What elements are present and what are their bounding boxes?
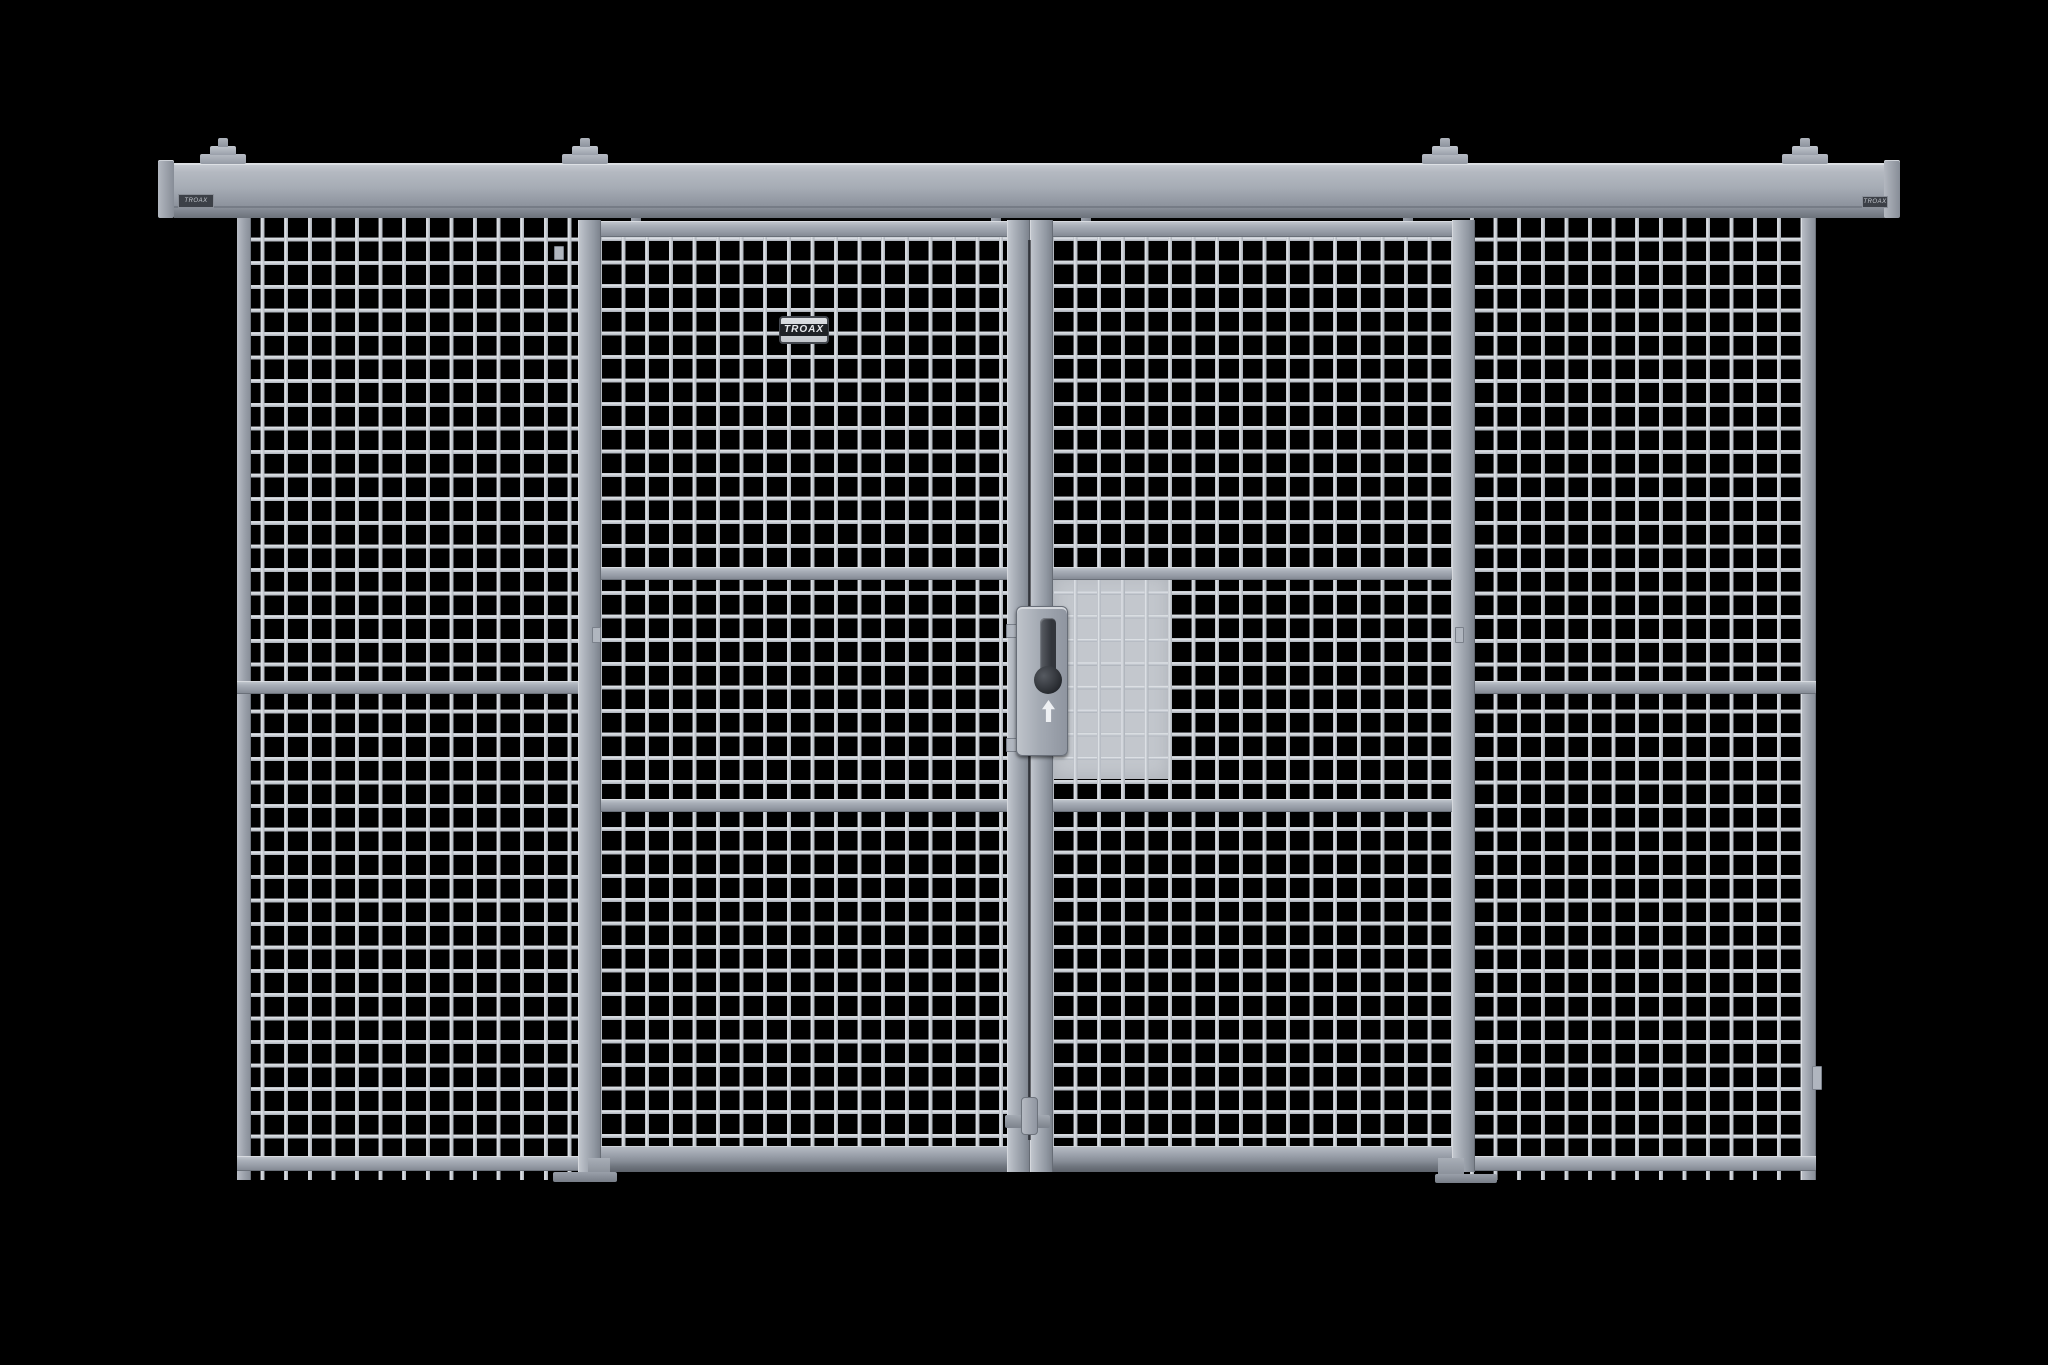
mounting-bracket-4-cap [1792,146,1818,155]
fixed-panel-left-frame-bar [237,214,251,1180]
door-right-mesh [1050,237,1455,1150]
door-left-mesh [598,237,1010,1150]
mounting-bracket-1-cap [210,146,236,155]
mounting-bracket-1-base [200,154,246,164]
top-track-beam [162,163,1897,208]
mounting-bracket-3-base [1422,154,1468,164]
top-track-lower-lip [174,208,1886,218]
mounting-bracket-3-cap [1432,146,1458,155]
door-right-bottom-rail [1030,1146,1475,1172]
fixed-panel-left-mid-rail [237,681,590,694]
door-handle-hub [1034,666,1062,694]
fixed-panel-right-bottom-rail [1470,1156,1816,1171]
door-right-floor-guide-plate [1435,1174,1497,1183]
mounting-bracket-2-bolt [580,138,590,147]
door-right-stile-right [1452,220,1475,1172]
door-left-mid-rail-lower [598,799,1010,812]
door-left-stile-clip [592,627,601,643]
fixed-panel-right-mesh [1470,214,1816,1180]
fixed-panel-left-clip [554,246,564,260]
track-label-right: TROAX [1862,196,1888,208]
product-render-scene: TROAX TROAX TROAX [0,0,2048,1365]
door-left-stile-left [578,220,601,1172]
track-endcap-left [158,160,174,218]
door-right-stile-clip [1455,627,1464,643]
bottom-latch-lug-left [1005,1115,1022,1128]
bottom-latch-lug-right [1037,1115,1050,1128]
door-left-bottom-rail [578,1146,1030,1172]
track-endcap-right [1884,160,1900,218]
door-left-floor-guide-plate [553,1172,617,1182]
mounting-bracket-2-base [562,154,608,164]
door-right-top-rail [1030,221,1475,237]
mounting-bracket-4-base [1782,154,1828,164]
fixed-panel-right-mid-rail [1470,681,1816,694]
brand-label-plate: TROAX [779,316,829,344]
fixed-panel-right-wall-tab [1812,1066,1822,1090]
door-left-mid-rail-upper [598,567,1010,580]
mounting-bracket-1-bolt [218,138,228,147]
brand-label-text: TROAX [780,324,828,336]
mounting-bracket-4-bolt [1800,138,1810,147]
fixed-panel-left-bottom-rail [237,1156,590,1171]
door-right-mid-rail-upper [1050,567,1455,580]
fixed-panel-left-mesh [237,214,590,1180]
track-label-left: TROAX [178,194,214,208]
door-left-top-rail [578,221,1030,237]
mounting-bracket-3-bolt [1440,138,1450,147]
door-right-mid-rail-lower [1050,799,1455,812]
bottom-center-latch [1021,1097,1038,1135]
fixed-panel-right-frame-bar [1802,214,1816,1180]
mounting-bracket-2-cap [572,146,598,155]
